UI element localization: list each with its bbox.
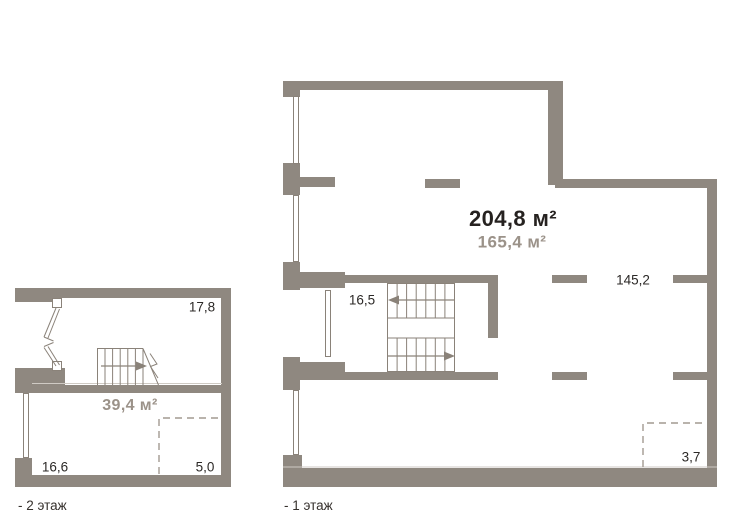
- floor1-stair-up-arrow-icon: [388, 296, 454, 305]
- room-area-label-17-8: 17,8: [189, 300, 215, 314]
- floor2-area: 39,4 м²: [102, 398, 158, 414]
- floor2-stair-arrow-icon: [101, 354, 158, 379]
- floor1-stair-down-arrow-icon: [388, 352, 455, 361]
- floor1-plan: [283, 81, 717, 487]
- floorplan-canvas: 204,8 м² 165,4 м² 16,5 145,2 3,7 - 1 эта…: [0, 0, 747, 523]
- floor1-total-area: 204,8 м²: [469, 208, 557, 230]
- floor1-secondary-area: 165,4 м²: [478, 234, 547, 251]
- floor2-plan: [15, 288, 231, 487]
- floor1-walls: [283, 81, 717, 487]
- window-jamb-icon: [53, 299, 62, 308]
- window-icon: [294, 391, 299, 455]
- window-icon: [294, 97, 299, 164]
- room-area-label-16-5: 16,5: [349, 293, 375, 307]
- window-icon: [24, 394, 29, 458]
- angled-window-icon: [44, 308, 60, 366]
- room-area-label-5-0: 5,0: [196, 460, 215, 474]
- floorplan-drawing: [0, 0, 747, 523]
- window-icon: [326, 291, 331, 357]
- room-area-label-3-7: 3,7: [682, 450, 701, 464]
- window-icon: [294, 196, 299, 262]
- floor2-label: - 2 этаж: [18, 499, 67, 513]
- room-area-label-16-6: 16,6: [42, 460, 68, 474]
- floor2-walls: [15, 288, 231, 487]
- room-area-label-145-2: 145,2: [616, 273, 650, 287]
- floor1-label: - 1 этаж: [284, 499, 333, 513]
